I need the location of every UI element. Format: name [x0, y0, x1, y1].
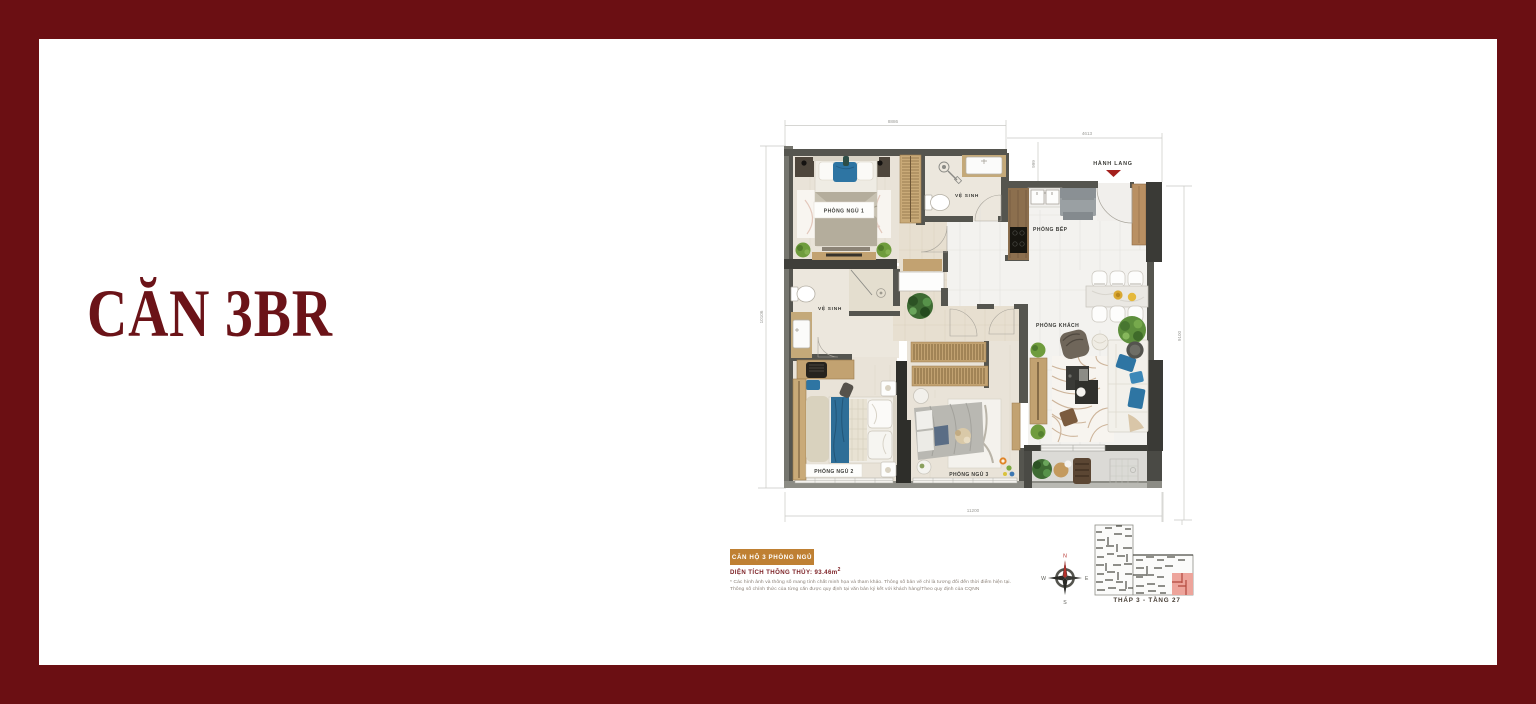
- svg-text:PHÒNG NGỦ 3: PHÒNG NGỦ 3: [949, 470, 988, 478]
- svg-text:999: 999: [1031, 160, 1036, 168]
- svg-text:N: N: [1063, 553, 1067, 559]
- svg-text:PHÒNG BẾP: PHÒNG BẾP: [1033, 225, 1068, 233]
- svg-text:10106: 10106: [759, 310, 764, 323]
- svg-text:PHÒNG NGỦ 2: PHÒNG NGỦ 2: [814, 467, 853, 475]
- svg-text:11200: 11200: [967, 508, 980, 513]
- svg-text:9100: 9100: [1177, 330, 1182, 341]
- svg-text:HÀNH LANG: HÀNH LANG: [1093, 160, 1133, 167]
- svg-text:S: S: [1063, 600, 1067, 605]
- svg-text:PHÒNG NGỦ 1: PHÒNG NGỦ 1: [824, 207, 865, 215]
- svg-text:PHÒNG KHÁCH: PHÒNG KHÁCH: [1036, 321, 1079, 329]
- svg-text:E: E: [1085, 576, 1089, 582]
- svg-text:W: W: [1041, 576, 1046, 582]
- svg-text:4613: 4613: [1082, 131, 1093, 136]
- svg-text:8886: 8886: [888, 119, 899, 124]
